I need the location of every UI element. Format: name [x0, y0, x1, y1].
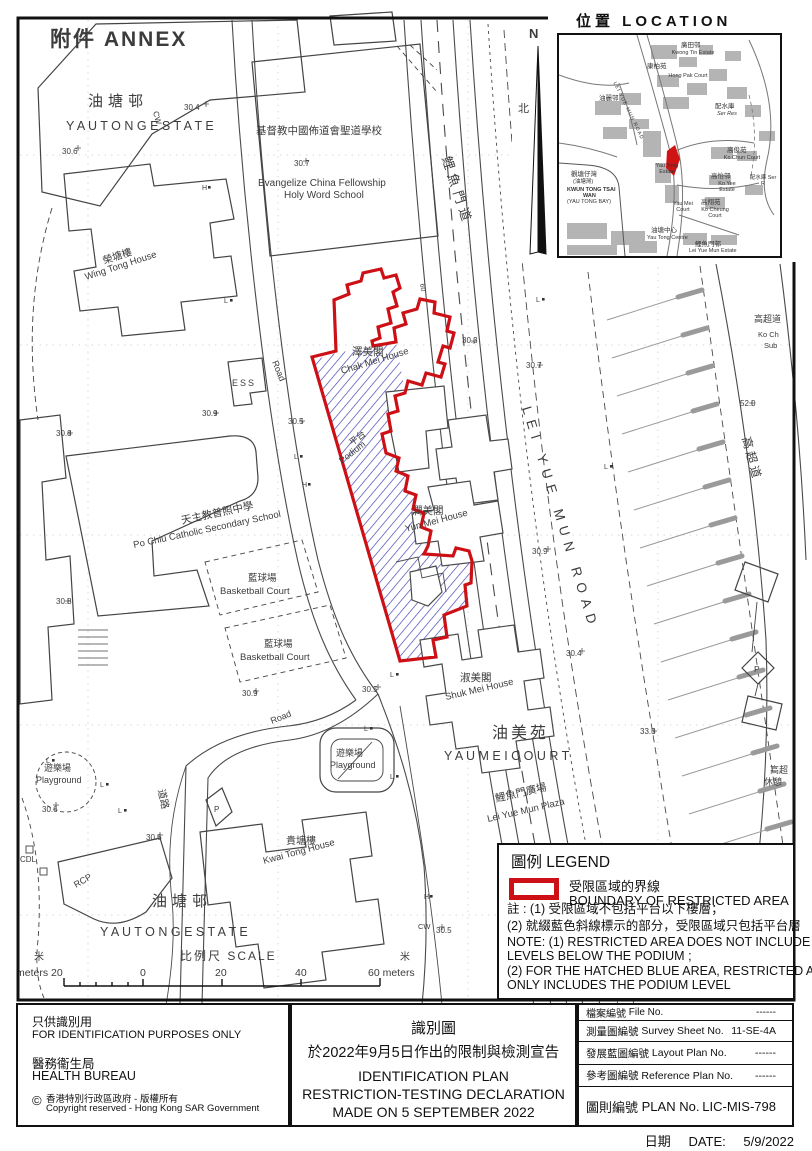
scale-0: 0 [140, 967, 146, 979]
yau-mei-court-zh: 油美苑 [492, 724, 549, 742]
yau-tong-estate2-en: Y A U T O N G E S T A T E [100, 925, 248, 939]
location-inset-canvas [559, 35, 780, 256]
legend-panel: 圖例 LEGEND 受限區域的界線 BOUNDARY OF RESTRICTED… [497, 843, 795, 1000]
basketball-court1-zh: 藍球場 [248, 572, 277, 584]
footer-plan-table: 檔案編號 File No. ------ 測量圖編號 Survey Sheet … [577, 1003, 794, 1127]
lei-yue-mun-road-zh: 鯉魚門道 [439, 154, 476, 227]
plan-title-en2: RESTRICTION-TESTING DECLARATION [302, 1086, 565, 1102]
north-n-label: N [529, 26, 538, 41]
playground1-en: Playground [36, 775, 82, 785]
inset-label: Yau Mei Court [671, 201, 695, 213]
table-row-layout-plan: 發展藍圖編號 Layout Plan No. ------ [579, 1042, 792, 1065]
lamp-label: L [390, 774, 394, 781]
road-label: Road [269, 709, 293, 726]
inset-label: Kwong Tin Estate [671, 50, 715, 56]
row-label-zh: 參考圖編號 [586, 1068, 639, 1083]
inset-label: 高翔苑 [701, 199, 721, 206]
parking-label: P [214, 805, 219, 814]
inset-label: 觀塘仔灣 [571, 171, 597, 178]
inset-label: 配水庫 [715, 103, 735, 110]
identification-en: FOR IDENTIFICATION PURPOSES ONLY [32, 1029, 241, 1041]
table-row-reference-plan: 參考圖編號 Reference Plan No. ------ [579, 1065, 792, 1087]
date-label-en: DATE: [688, 1134, 725, 1149]
rest-garden-zh2: 休憩 [764, 776, 782, 787]
lei-yue-mun-road-en: LEI YUE MUN ROAD [519, 404, 601, 631]
basketball-court1-en: Basketball Court [220, 586, 290, 597]
scale-title: 比例尺 SCALE [180, 949, 277, 963]
scale-unit-right: 米 [400, 950, 410, 963]
inset-label: Ser Res [717, 111, 737, 118]
inset-label: Ko Yee Estate [711, 181, 743, 193]
legend-title: 圖例 LEGEND [511, 850, 610, 872]
inset-label: Ko Chun Court [719, 155, 765, 161]
inset-label: Yau Tong Centre [647, 235, 688, 242]
legend-note-en4: ONLY INCLUDES THE PODIUM LEVEL [507, 978, 731, 992]
restricted-area-swatch [509, 878, 559, 900]
parking-label: P [754, 664, 760, 674]
row-label-en: Reference Plan No. [641, 1070, 733, 1082]
playground2-en: Playground [330, 760, 376, 770]
ko-chiu-road2-zh: 高超道 [754, 313, 781, 324]
row-value: ------ [755, 1047, 776, 1059]
cdl-label: CDL [20, 855, 37, 864]
hydrant-label: H [202, 185, 207, 192]
inset-label: 高怡邨 [711, 173, 731, 180]
scale-40: 40 [295, 967, 307, 979]
row-label-en: Survey Sheet No. [641, 1025, 723, 1037]
school-label-zh: 基督教中國佈道會聖道學校 [256, 124, 382, 137]
date-label-zh: 日期 [645, 1134, 671, 1149]
road-number: 60 [418, 283, 426, 292]
yau-mei-court-en: Y A U M E I C O U R T [444, 749, 570, 763]
plan-title-zh1: 識別圖 [411, 1017, 456, 1038]
date-line: 日期 DATE: 5/9/2022 [540, 1131, 794, 1150]
school-label-en1: Evangelize China Fellowship [258, 178, 386, 189]
scale-meters-left: meters 20 [16, 967, 63, 979]
spot-height: 30.6 [146, 833, 162, 842]
ess-label: ESS [232, 378, 256, 388]
spot-height: 30.8 [56, 597, 72, 606]
inset-label: Ko Cheung Court [695, 207, 735, 219]
spot-height: 30.5 [362, 685, 378, 694]
table-row-plan-no: 圖則編號 PLAN No. LIC-MIS-798 [579, 1087, 792, 1125]
playground2-zh: 遊樂場 [336, 747, 363, 758]
road-label-zh: 道路 [155, 788, 172, 810]
north-bei-label: 北 [518, 102, 529, 115]
row-label-zh: 發展藍圖編號 [586, 1046, 649, 1061]
scale-bar: 米 比例尺 SCALE 米 meters 20 0 20 40 60 meter… [16, 949, 415, 986]
row-value: 11-SE-4A [731, 1025, 776, 1037]
date-value: 5/9/2022 [743, 1134, 794, 1149]
road-label: Road [270, 359, 287, 383]
spot-height: 30.3 [462, 336, 478, 345]
lamp-label: L [100, 782, 104, 789]
lamp-label: L [536, 297, 540, 304]
spot-height: 30.7 [294, 159, 310, 168]
health-bureau-en: HEALTH BUREAU [32, 1069, 136, 1083]
copyright-en: Copyright reserved - Hong Kong SAR Gover… [46, 1103, 259, 1114]
inset-label: (YAU TONG BAY) [567, 199, 611, 206]
inset-label: (油塘灣) [573, 179, 593, 186]
legend-note-zh2: (2) 就綴藍色斜線標示的部分，受限區域只包括平台層 [507, 915, 801, 934]
spot-height: 30.5 [288, 417, 304, 426]
inset-label: 康柏苑 [647, 63, 667, 70]
ko-chiu-road-zh: 高超道 [739, 435, 765, 482]
spot-height: 30.6 [42, 805, 58, 814]
spot-height: 30.8 [56, 429, 72, 438]
basketball-court2-en: Basketball Court [240, 652, 310, 663]
hydrant-label: H [424, 894, 429, 901]
rest-garden-zh1: 高超 [770, 764, 788, 775]
ko-chiu-subway-en2: Sub [764, 341, 777, 350]
annex-title: 附件 ANNEX [50, 28, 187, 51]
slope-hatching [607, 290, 791, 852]
basketball-court2-zh: 藍球場 [264, 638, 293, 650]
row-value: LIC-MIS-798 [702, 1099, 776, 1114]
inset-label: 高俊苑 [727, 147, 747, 154]
spot-height: 30.5 [436, 926, 452, 935]
copyright-symbol: © [32, 1093, 42, 1108]
row-label-zh: 圖則編號 [586, 1097, 638, 1116]
identification-zh: 只供識別用 [32, 1013, 92, 1030]
cw-label: CW [418, 922, 431, 931]
lamp-label: L [364, 726, 368, 733]
table-row-file-no: 檔案編號 File No. ------ [579, 1005, 792, 1021]
inset-label: 廣田邨 [681, 42, 701, 49]
row-value: ------ [756, 1007, 776, 1018]
footer-identification-box: 只供識別用 FOR IDENTIFICATION PURPOSES ONLY 醫… [16, 1003, 290, 1127]
identification-plan-page: { "colors": { "boundary_red": "#cc1016",… [0, 0, 812, 1151]
plan-title-en3: MADE ON 5 SEPTEMBER 2022 [332, 1104, 534, 1120]
footer-title-box: 識別圖 於2022年9月5日作出的限制與檢測宣告 IDENTIFICATION … [290, 1003, 577, 1127]
spot-height: 30.6 [62, 147, 78, 156]
inset-label: Hong Pak Court [667, 73, 709, 79]
location-inset-title: 位置 LOCATION [576, 10, 776, 31]
rcp-label: RCP [72, 872, 93, 890]
lamp-label: L [118, 808, 122, 815]
spot-height: 30.9 [202, 409, 218, 418]
school-label-en2: Holy Word School [284, 190, 364, 201]
lamp-label: L [294, 454, 298, 461]
spot-height: 30.9 [532, 547, 548, 556]
location-inset: 位置 LOCATION [548, 6, 796, 262]
row-label-en: PLAN No. [642, 1099, 700, 1114]
row-label-zh: 檔案編號 [586, 1005, 626, 1020]
legend-note-en3: (2) FOR THE HATCHED BLUE AREA, RESTRICTE… [507, 964, 812, 978]
yau-tong-estate-label-en: Y A U T O N G E S T A T E [66, 119, 214, 133]
inset-label: Lei Yue Mun Estate [689, 248, 737, 255]
spot-height: 30.4 [184, 103, 200, 112]
inset-label: 油塘中心 [651, 227, 677, 234]
row-label-zh: 測量圖編號 [586, 1024, 639, 1039]
row-value: ------ [755, 1070, 776, 1082]
row-label-en: Layout Plan No. [652, 1047, 727, 1059]
yau-tong-estate-label-zh: 油塘邨 [88, 93, 148, 110]
spot-height: 33.3 [640, 727, 656, 736]
spot-height: 30.7 [526, 361, 542, 370]
yau-tong-estate2-zh: 油塘邨 [152, 893, 212, 910]
legend-note-en1: NOTE: (1) RESTRICTED AREA DOES NOT INCLU… [507, 935, 810, 949]
playground1-zh: 遊樂場 [44, 762, 71, 773]
lamp-label: L [390, 672, 394, 679]
scale-60: 60 meters [368, 967, 415, 979]
hydrant-label: H [302, 482, 307, 489]
inset-label: 鯉魚門邨 [695, 241, 721, 248]
legend-note-en2: LEVELS BELOW THE PODIUM ; [507, 949, 692, 963]
spot-height: 30.9 [242, 689, 258, 698]
plan-title-zh2: 於2022年9月5日作出的限制與檢測宣告 [308, 1041, 559, 1062]
table-row-survey-sheet: 測量圖編號 Survey Sheet No. 11-SE-4A [579, 1021, 792, 1042]
location-inset-map: 廣田邨 Kwong Tin Estate 康柏苑 Hong Pak Court … [557, 33, 782, 258]
spot-height: 52.0 [740, 399, 756, 408]
row-label-en: File No. [629, 1007, 663, 1018]
inset-label: 配水庫 Ser R [749, 175, 777, 187]
scale-20: 20 [215, 967, 227, 979]
ko-chiu-subway-en1: Ko Ch [758, 330, 779, 339]
inset-label: Yau Tong Estate [653, 163, 681, 175]
scale-unit-left: 米 [34, 950, 44, 963]
lamp-label: L [604, 464, 608, 471]
plan-title-en1: IDENTIFICATION PLAN [358, 1068, 509, 1084]
spot-height: 30.4 [566, 649, 582, 658]
lamp-label: L [224, 298, 228, 305]
